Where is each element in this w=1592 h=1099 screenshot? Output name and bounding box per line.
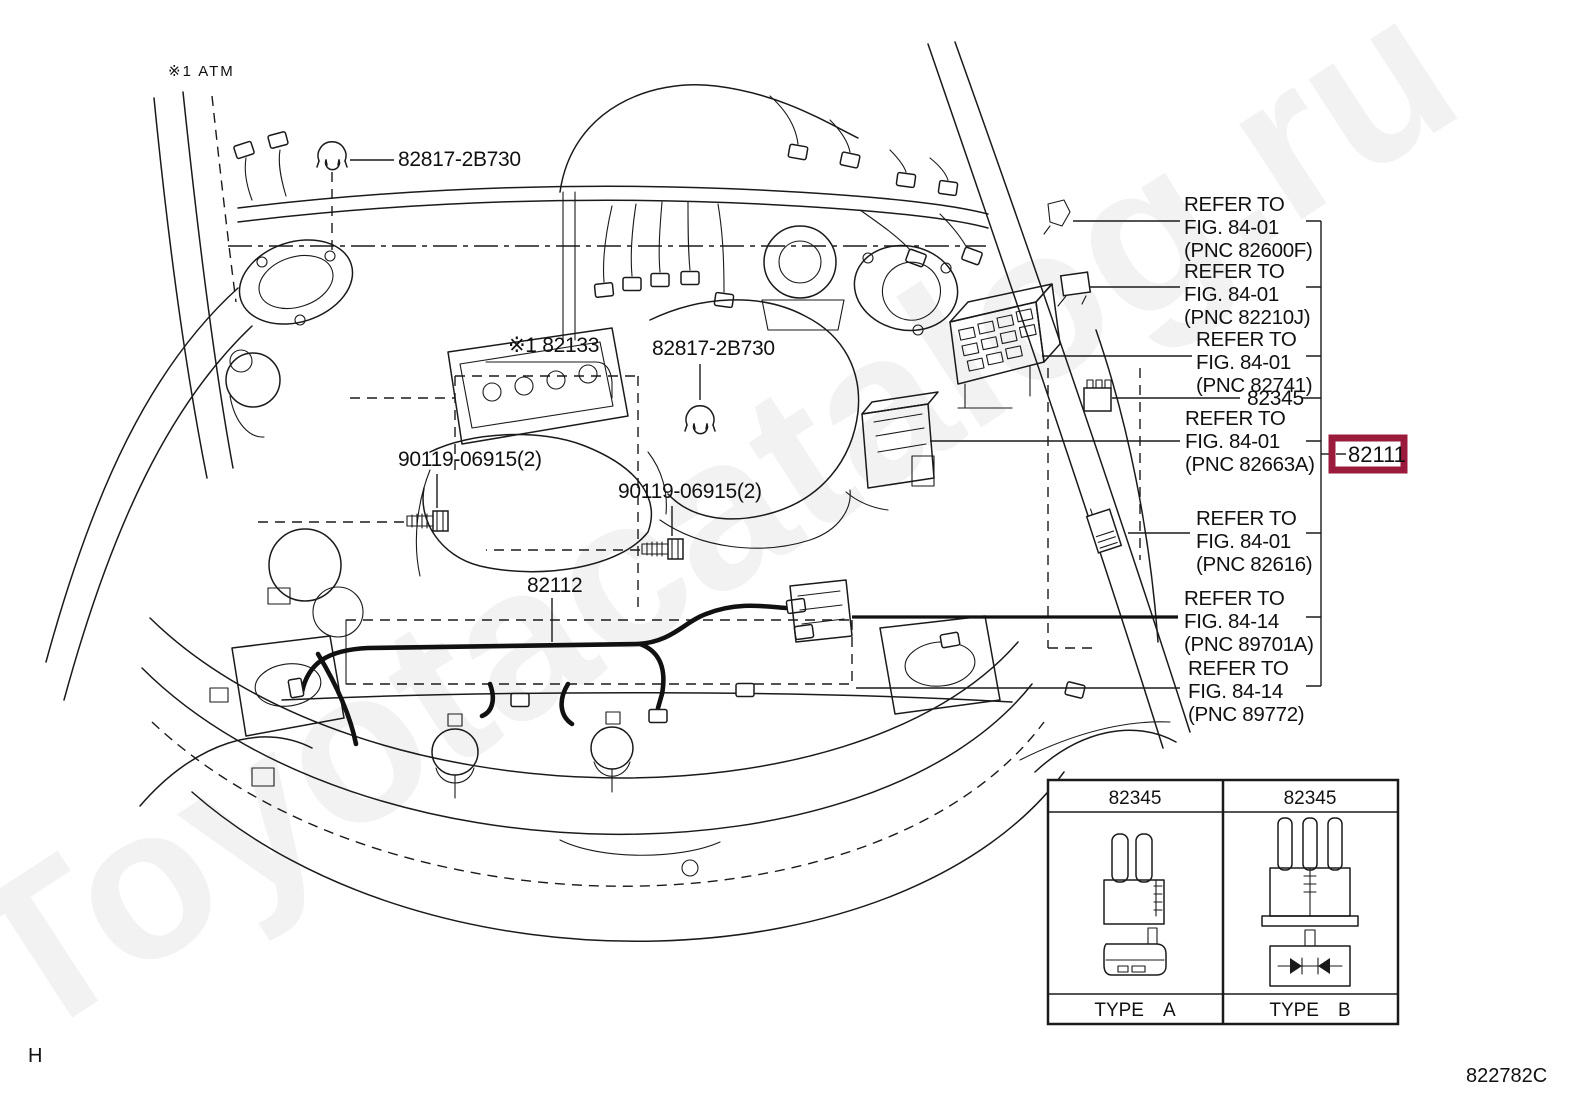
label-clamp-top: 82817-2B730 bbox=[398, 148, 521, 171]
callout-line: REFER TO bbox=[1184, 193, 1285, 216]
table-type-a: TYPE A bbox=[1094, 1000, 1176, 1021]
callout-line: (PNC 89701A) bbox=[1184, 633, 1314, 656]
callout-line: (PNC 82616) bbox=[1196, 553, 1312, 576]
label-engine-82133: ※1 82133 bbox=[508, 334, 599, 357]
callout-line: REFER TO bbox=[1184, 260, 1285, 283]
callout-line: REFER TO bbox=[1196, 328, 1297, 351]
sheet-letter: H bbox=[28, 1045, 42, 1067]
callout-line: FIG. 84-01 bbox=[1196, 530, 1291, 553]
callout-line: REFER TO bbox=[1188, 657, 1289, 680]
label-front-harness: 82112 bbox=[527, 574, 582, 597]
callout-line: (PNC 82600F) bbox=[1184, 239, 1313, 262]
callout-line: FIG. 84-14 bbox=[1184, 610, 1279, 633]
callout-line: FIG. 84-01 bbox=[1185, 430, 1280, 453]
callout-line: FIG. 84-01 bbox=[1196, 351, 1291, 374]
callout-line: REFER TO bbox=[1184, 587, 1285, 610]
highlight-part-number: 82111 bbox=[1348, 442, 1406, 467]
callout-line: (PNC 82210J) bbox=[1184, 306, 1310, 329]
note-atm: ※1 ATM bbox=[168, 63, 235, 80]
parts-diagram-canvas: Toyotacatalog.ru bbox=[0, 0, 1592, 1099]
figure-code: 822782C bbox=[1466, 1065, 1547, 1087]
label-clamp-mid: 82817-2B730 bbox=[652, 337, 775, 360]
callout-82663A: REFER TO FIG. 84-01 (PNC 82663A) bbox=[1185, 407, 1315, 476]
table-header-a: 82345 bbox=[1109, 788, 1162, 809]
callout-line: (PNC 82663A) bbox=[1185, 453, 1315, 476]
highlighted-part: 82111 bbox=[1332, 438, 1406, 470]
callout-line: (PNC 89772) bbox=[1188, 703, 1304, 726]
callout-line: FIG. 84-14 bbox=[1188, 680, 1283, 703]
callout-89772: REFER TO FIG. 84-14 (PNC 89772) bbox=[1188, 657, 1304, 726]
callout-line: REFER TO bbox=[1185, 407, 1286, 430]
callout-line: FIG. 84-01 bbox=[1184, 283, 1279, 306]
callout-line: REFER TO bbox=[1196, 507, 1297, 530]
callout-89701A: REFER TO FIG. 84-14 (PNC 89701A) bbox=[1184, 587, 1314, 656]
callout-82616: REFER TO FIG. 84-01 (PNC 82616) bbox=[1196, 507, 1312, 576]
type-table: 82345 82345 TYPE A TYPE B bbox=[1048, 780, 1398, 1024]
table-header-b: 82345 bbox=[1284, 788, 1337, 809]
table-type-b: TYPE B bbox=[1269, 1000, 1350, 1021]
label-bolt-left: 90119-06915(2) bbox=[398, 448, 542, 471]
label-bolt-right: 90119-06915(2) bbox=[618, 480, 762, 503]
callout-line: FIG. 84-01 bbox=[1184, 216, 1279, 239]
